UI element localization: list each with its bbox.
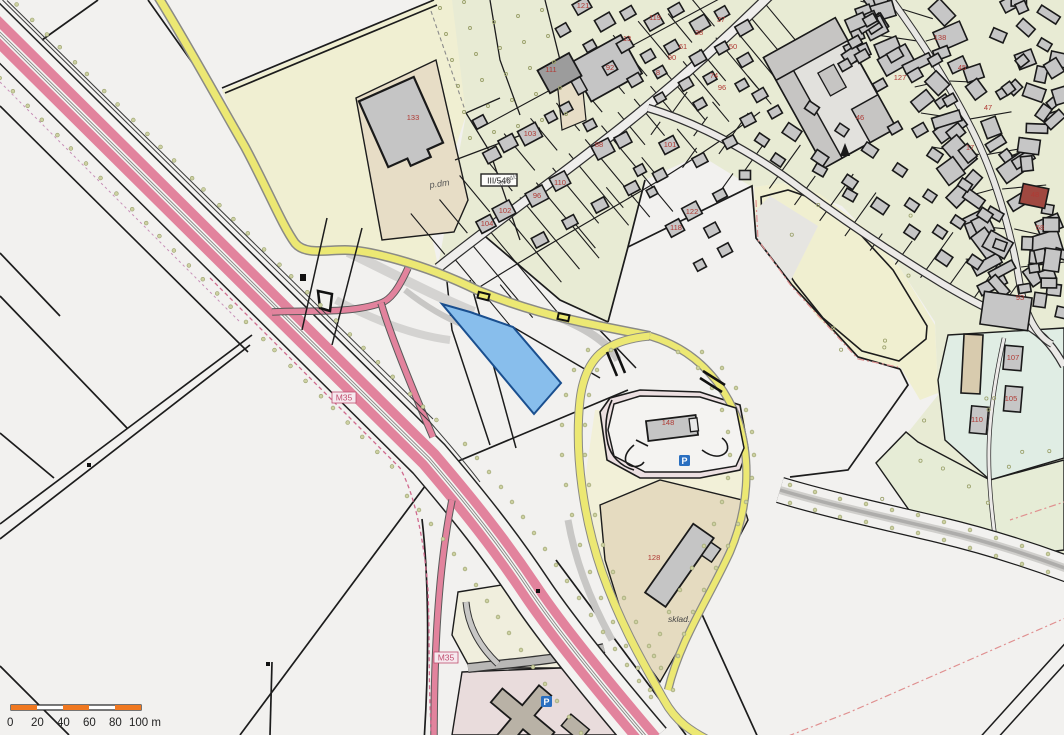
svg-text:138: 138: [934, 33, 947, 42]
svg-text:37: 37: [717, 15, 725, 24]
svg-text:40: 40: [57, 717, 70, 729]
svg-text:P: P: [681, 456, 687, 466]
svg-text:8: 8: [656, 68, 660, 77]
svg-text:38: 38: [695, 28, 703, 37]
svg-text:61: 61: [679, 42, 687, 51]
svg-text:50: 50: [729, 42, 737, 51]
svg-text:13: 13: [623, 34, 631, 43]
svg-text:118: 118: [670, 223, 682, 232]
svg-text:M35: M35: [336, 393, 353, 403]
svg-text:46: 46: [856, 113, 864, 122]
svg-text:127: 127: [894, 73, 907, 82]
svg-text:88: 88: [595, 140, 603, 149]
svg-text:92: 92: [606, 63, 614, 72]
svg-text:48: 48: [1031, 190, 1039, 199]
svg-text:102: 102: [499, 206, 512, 215]
svg-text:111: 111: [545, 65, 556, 74]
svg-text:128: 128: [648, 553, 661, 562]
svg-text:45: 45: [958, 63, 966, 72]
svg-text:58: 58: [1036, 223, 1044, 232]
svg-text:133: 133: [407, 113, 420, 122]
svg-text:P: P: [543, 697, 549, 707]
svg-text:107: 107: [1007, 353, 1020, 362]
svg-text:20: 20: [31, 717, 44, 729]
svg-text:110: 110: [971, 415, 983, 424]
svg-text:80: 80: [109, 717, 122, 729]
svg-text:17: 17: [966, 143, 974, 152]
svg-text:90: 90: [668, 53, 676, 62]
svg-text:74: 74: [710, 71, 718, 80]
svg-text:60: 60: [83, 717, 96, 729]
svg-text:96: 96: [533, 191, 541, 200]
svg-text:103: 103: [524, 129, 537, 138]
svg-text:121: 121: [577, 1, 590, 10]
svg-text:0: 0: [7, 717, 13, 729]
svg-text:101: 101: [664, 140, 677, 149]
svg-text:119: 119: [649, 13, 661, 22]
svg-text:100 m: 100 m: [129, 717, 161, 729]
svg-text:110: 110: [554, 178, 566, 187]
svg-text:sklad.: sklad.: [668, 614, 690, 624]
svg-text:M35: M35: [438, 653, 455, 663]
svg-text:93: 93: [1016, 293, 1024, 302]
svg-text:122: 122: [686, 207, 699, 216]
svg-text:47: 47: [984, 103, 992, 112]
svg-text:105: 105: [1005, 394, 1018, 403]
svg-text:96: 96: [718, 83, 726, 92]
svg-text:104: 104: [481, 219, 494, 228]
svg-text:148: 148: [662, 418, 675, 427]
